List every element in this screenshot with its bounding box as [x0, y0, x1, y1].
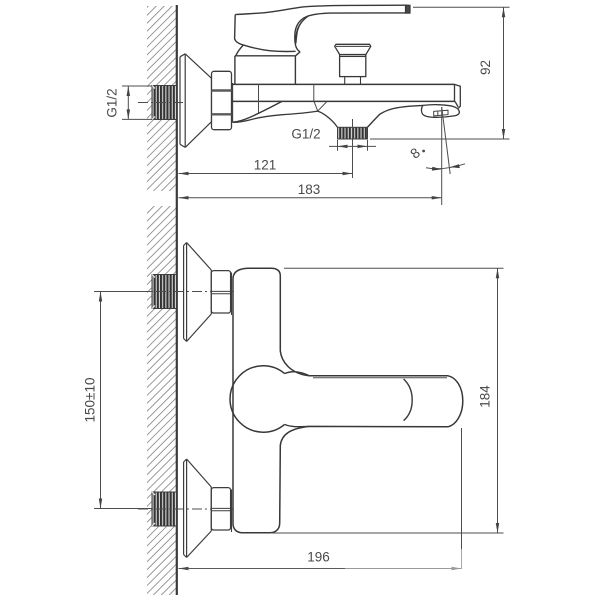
svg-text:121: 121 — [254, 158, 277, 173]
svg-text:184: 184 — [478, 385, 493, 408]
svg-text:92: 92 — [478, 60, 493, 75]
svg-text:196: 196 — [307, 550, 330, 565]
svg-text:G1/2: G1/2 — [105, 88, 120, 117]
svg-text:183: 183 — [298, 182, 321, 197]
svg-text:150±10: 150±10 — [83, 378, 98, 423]
svg-text:G1/2: G1/2 — [291, 127, 320, 142]
